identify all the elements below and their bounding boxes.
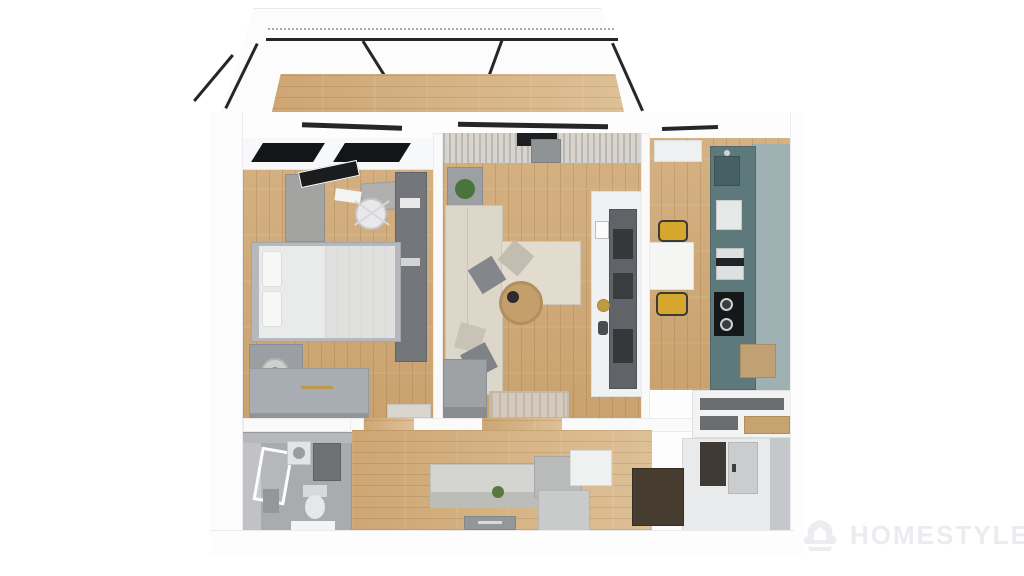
skylight-glass-panel bbox=[333, 143, 411, 162]
hallway-plant-decor bbox=[492, 486, 504, 498]
dark-vase bbox=[598, 321, 608, 335]
kitchen-faucet bbox=[724, 150, 730, 156]
bathroom-cabinet bbox=[263, 489, 279, 513]
floorplan-render: HOMESTYLER bbox=[0, 0, 1024, 576]
dresser-gold-trim bbox=[301, 386, 333, 389]
hallway-bench-top bbox=[430, 464, 538, 494]
vanity-counter bbox=[313, 443, 341, 481]
entry-dark-doormat bbox=[632, 468, 684, 526]
entry-dark-opening bbox=[700, 442, 726, 486]
wall-bedroom-living bbox=[433, 133, 443, 420]
cooktop-burner bbox=[720, 318, 733, 331]
living-room bbox=[443, 133, 643, 420]
media-shelf-slot bbox=[613, 273, 633, 299]
bed-pillow bbox=[262, 291, 282, 327]
toilet-bowl bbox=[305, 495, 325, 519]
kitchen-oven-band bbox=[716, 258, 744, 266]
homestyler-logo-icon bbox=[800, 518, 840, 552]
bed-duvet bbox=[325, 246, 395, 338]
wardrobe-shelf-items bbox=[400, 258, 420, 266]
balcony-glass-frame-top bbox=[266, 38, 618, 41]
bedroom-door-rug bbox=[387, 404, 431, 418]
watermark-brand-text: HOMESTYLER bbox=[850, 520, 1024, 551]
cooktop-burner bbox=[720, 298, 733, 311]
living-room-rug bbox=[489, 391, 569, 419]
kitchen bbox=[648, 138, 790, 390]
apartment-bottom-wall bbox=[210, 530, 794, 556]
storage-box-white bbox=[570, 450, 612, 486]
entry-shelf-slot bbox=[700, 416, 738, 430]
wall-living-kitchen bbox=[641, 133, 650, 420]
potted-plant bbox=[455, 179, 475, 199]
balcony-glass-top-edge bbox=[268, 28, 614, 30]
hallway-doormat-label bbox=[478, 521, 502, 524]
apartment-left-wall bbox=[210, 112, 243, 556]
media-shelf-slot bbox=[613, 229, 633, 259]
apartment-right-wall bbox=[790, 112, 804, 556]
wardrobe-shelf-items bbox=[400, 198, 420, 208]
bathroom bbox=[240, 432, 352, 534]
skylight-glass-panel bbox=[251, 143, 325, 162]
hallway bbox=[352, 430, 652, 530]
bedroom bbox=[243, 138, 433, 420]
hallway-bench-front bbox=[430, 492, 538, 508]
kitchen-fridge bbox=[716, 200, 742, 230]
media-shelf-slot bbox=[613, 329, 633, 363]
kitchen-skylight bbox=[654, 140, 702, 162]
entry-wood-cubby bbox=[744, 416, 790, 434]
dining-table-marble bbox=[648, 242, 694, 290]
kitchen-lower-shelf bbox=[740, 344, 776, 378]
gold-clock bbox=[597, 299, 610, 312]
dresser-top bbox=[249, 368, 369, 414]
entry bbox=[652, 390, 792, 536]
washing-machine-door bbox=[293, 447, 305, 459]
coffee-table-tray bbox=[507, 291, 519, 303]
balcony bbox=[222, 8, 648, 120]
watermark: HOMESTYLER bbox=[800, 518, 1024, 552]
living-window-panel bbox=[531, 139, 561, 163]
dining-chair-yellow bbox=[658, 220, 688, 242]
kitchen-sink bbox=[714, 156, 740, 186]
coffee-table bbox=[499, 281, 543, 325]
bed-pillow bbox=[262, 251, 282, 287]
storage-box-speckled bbox=[538, 490, 590, 534]
dining-chair-yellow bbox=[656, 292, 688, 316]
entry-shelf-slot bbox=[700, 398, 784, 410]
picture-frame bbox=[595, 221, 609, 239]
entry-right-wall bbox=[770, 438, 792, 536]
entry-door-handle bbox=[732, 464, 736, 472]
